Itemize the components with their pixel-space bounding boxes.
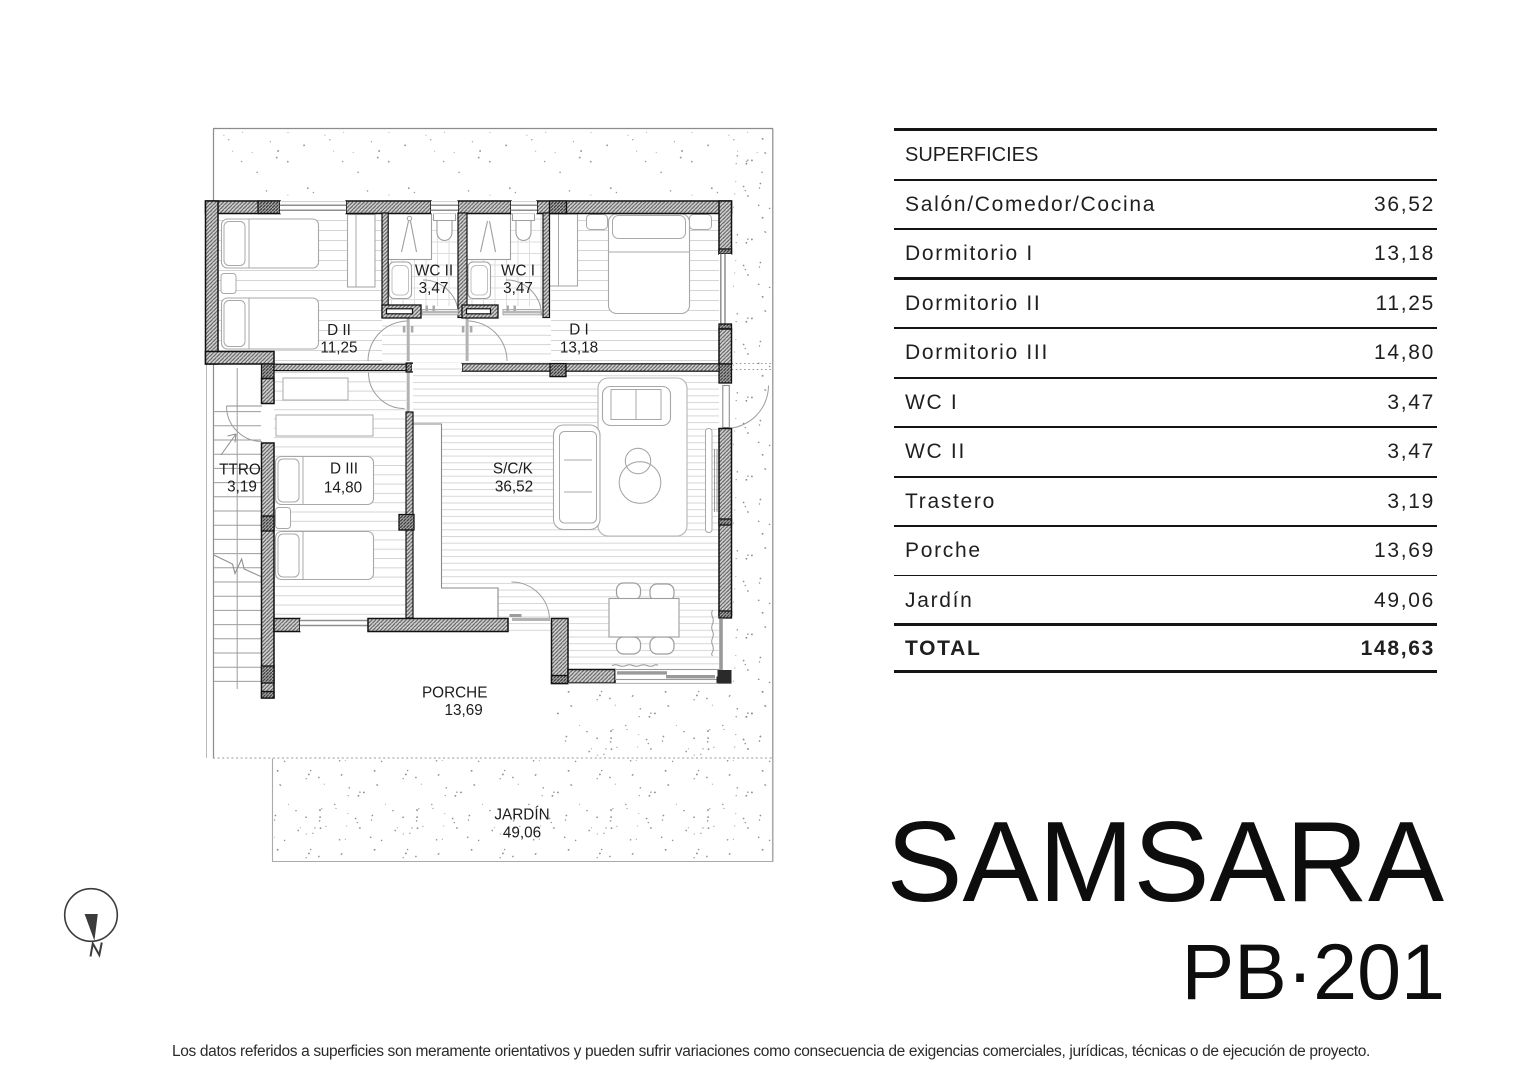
svg-text:49,06: 49,06 [503, 825, 541, 842]
svg-text:PORCHE: PORCHE [422, 684, 487, 701]
svg-text:3,47: 3,47 [419, 280, 449, 297]
svg-text:JARDÍN: JARDÍN [494, 807, 549, 824]
svg-text:D I: D I [569, 322, 589, 339]
svg-text:13,69: 13,69 [444, 702, 482, 719]
svg-text:13,18: 13,18 [560, 340, 598, 357]
svg-text:S/C/K: S/C/K [493, 460, 534, 477]
svg-text:3,47: 3,47 [503, 280, 533, 297]
svg-text:TTRO: TTRO [219, 462, 261, 479]
svg-text:11,25: 11,25 [320, 340, 357, 357]
svg-text:36,52: 36,52 [495, 478, 533, 495]
svg-text:3,19: 3,19 [227, 479, 257, 496]
svg-text:WC I: WC I [501, 263, 535, 280]
svg-text:WC II: WC II [415, 263, 453, 280]
svg-text:D II: D II [327, 322, 351, 339]
svg-text:D III: D III [330, 461, 358, 478]
svg-text:14,80: 14,80 [324, 480, 362, 497]
